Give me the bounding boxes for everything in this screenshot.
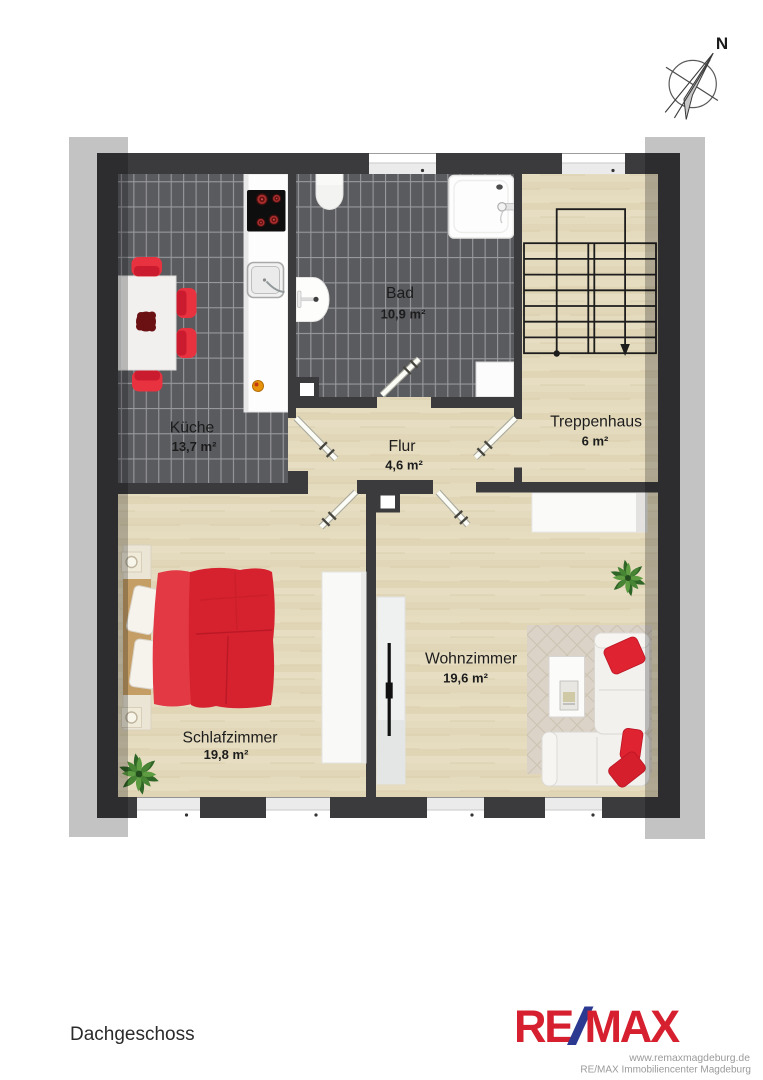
svg-text:RE: RE: [514, 1001, 573, 1052]
svg-text:4,6 m²: 4,6 m²: [385, 458, 423, 473]
svg-text:RE/MAX Immobiliencenter Magdeb: RE/MAX Immobiliencenter Magdeburg: [580, 1065, 751, 1076]
svg-text:Bad: Bad: [386, 285, 414, 302]
svg-text:www.remaxmagdeburg.de: www.remaxmagdeburg.de: [628, 1053, 750, 1064]
svg-text:10,9 m²: 10,9 m²: [381, 307, 426, 322]
svg-text:MAX: MAX: [585, 1001, 681, 1052]
svg-text:13,7 m²: 13,7 m²: [172, 439, 217, 454]
svg-text:Treppenhaus: Treppenhaus: [550, 414, 642, 431]
svg-text:19,6 m²: 19,6 m²: [443, 671, 488, 686]
svg-text:N: N: [716, 34, 728, 53]
svg-text:Wohnzimmer: Wohnzimmer: [425, 651, 517, 668]
svg-text:Flur: Flur: [388, 438, 415, 455]
svg-text:Küche: Küche: [170, 420, 215, 437]
svg-text:19,8 m²: 19,8 m²: [204, 747, 249, 762]
svg-text:Dachgeschoss: Dachgeschoss: [70, 1024, 195, 1045]
svg-text:Schlafzimmer: Schlafzimmer: [182, 730, 277, 747]
svg-text:6 m²: 6 m²: [582, 434, 609, 449]
